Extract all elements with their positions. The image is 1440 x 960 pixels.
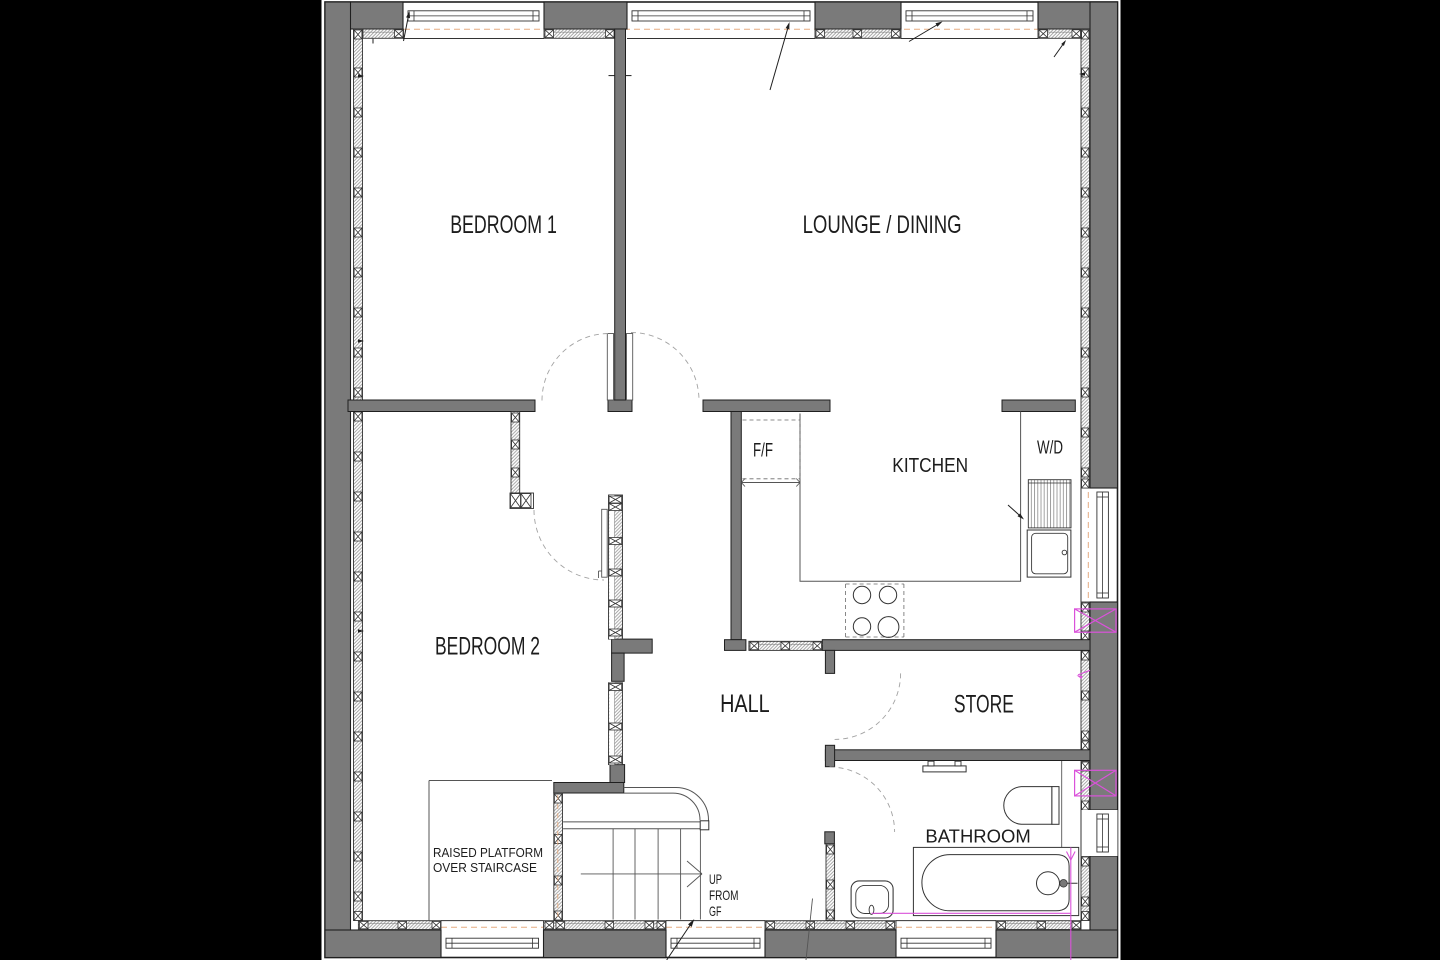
svg-text:BEDROOM 2: BEDROOM 2 bbox=[435, 633, 540, 661]
svg-text:BEDROOM 1: BEDROOM 1 bbox=[450, 211, 557, 239]
svg-text:UP: UP bbox=[709, 871, 722, 887]
svg-text:RAISED PLATFORM: RAISED PLATFORM bbox=[433, 845, 543, 860]
svg-text:W/D: W/D bbox=[1037, 437, 1063, 457]
svg-text:FROM: FROM bbox=[709, 887, 739, 903]
svg-text:HALL: HALL bbox=[720, 690, 770, 718]
svg-text:BATHROOM: BATHROOM bbox=[925, 826, 1030, 847]
svg-text:STORE: STORE bbox=[954, 691, 1014, 719]
svg-text:KITCHEN: KITCHEN bbox=[892, 455, 968, 477]
svg-text:F/F: F/F bbox=[753, 440, 773, 461]
svg-text:LOUNGE / DINING: LOUNGE / DINING bbox=[803, 211, 962, 239]
svg-text:GF: GF bbox=[709, 903, 722, 919]
svg-text:OVER STAIRCASE: OVER STAIRCASE bbox=[433, 860, 537, 875]
